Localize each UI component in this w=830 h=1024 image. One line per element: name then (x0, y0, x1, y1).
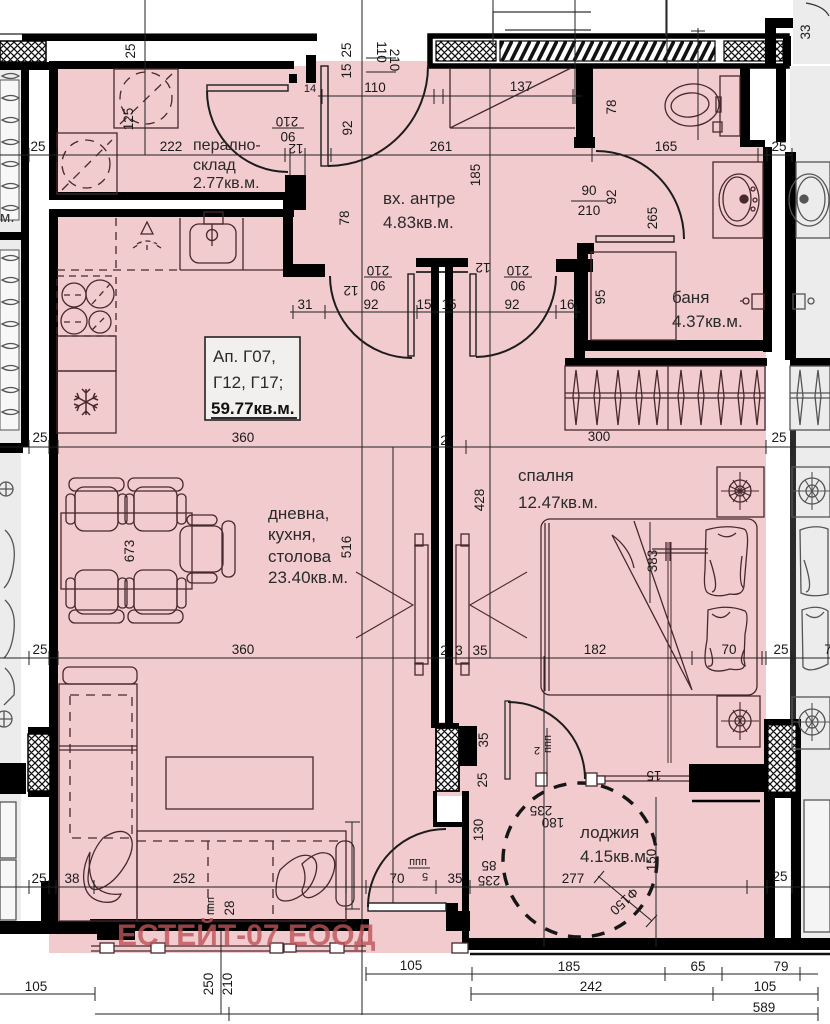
svg-text:столова: столова (268, 547, 332, 566)
svg-text:95: 95 (593, 289, 608, 304)
svg-text:277: 277 (562, 871, 585, 886)
svg-text:перално-: перално- (193, 137, 261, 154)
svg-text:137: 137 (510, 79, 533, 94)
svg-text:спалня: спалня (518, 466, 574, 485)
svg-text:12: 12 (288, 141, 303, 156)
svg-text:383: 383 (645, 550, 660, 573)
svg-text:673: 673 (122, 540, 137, 563)
svg-text:3: 3 (455, 643, 463, 658)
svg-text:35: 35 (447, 871, 462, 886)
svg-text:92: 92 (504, 297, 519, 312)
svg-text:15: 15 (646, 768, 661, 783)
svg-text:110: 110 (374, 41, 389, 63)
svg-text:185: 185 (468, 164, 483, 187)
svg-text:ЕСТЕЙТ-07 ЕООД: ЕСТЕЙТ-07 ЕООД (117, 918, 376, 952)
svg-text:242: 242 (580, 979, 603, 994)
svg-text:25: 25 (771, 430, 786, 445)
svg-text:25: 25 (339, 42, 354, 57)
svg-text:92: 92 (363, 297, 378, 312)
svg-text:33: 33 (798, 24, 813, 39)
svg-text:90: 90 (510, 278, 525, 293)
svg-text:210: 210 (276, 114, 299, 129)
svg-text:23.40кв.м.: 23.40кв.м. (268, 568, 348, 587)
svg-text:4.15кв.м.: 4.15кв.м. (580, 847, 651, 866)
svg-text:25: 25 (771, 139, 786, 154)
svg-text:ппп: ппп (409, 856, 427, 868)
svg-text:235: 235 (478, 873, 501, 888)
svg-text:25: 25 (32, 430, 47, 445)
svg-text:78: 78 (604, 99, 619, 114)
svg-text:105: 105 (25, 979, 48, 994)
svg-text:589: 589 (753, 1000, 776, 1015)
svg-text:125: 125 (121, 108, 136, 131)
svg-text:15: 15 (339, 63, 354, 78)
svg-text:210: 210 (578, 203, 601, 218)
svg-text:79: 79 (773, 959, 788, 974)
svg-text:265: 265 (645, 207, 660, 230)
svg-text:25: 25 (475, 772, 490, 787)
svg-text:65: 65 (690, 959, 705, 974)
svg-text:35: 35 (472, 643, 487, 658)
svg-text:14: 14 (304, 83, 316, 95)
svg-text:360: 360 (232, 430, 255, 445)
svg-text:85: 85 (481, 858, 496, 873)
svg-text:210: 210 (220, 973, 235, 996)
svg-text:Ап. Г07,: Ап. Г07, (213, 347, 276, 366)
svg-text:165: 165 (655, 139, 678, 154)
svg-text:Г12, Г17;: Г12, Г17; (213, 373, 283, 392)
svg-text:7: 7 (824, 642, 830, 657)
svg-text:250: 250 (201, 973, 216, 996)
svg-text:110: 110 (364, 80, 386, 95)
svg-text:130: 130 (471, 819, 486, 842)
svg-text:вх. антре: вх. антре (383, 189, 456, 208)
svg-text:12.47кв.м.: 12.47кв.м. (518, 493, 598, 512)
svg-text:ппп: ппп (542, 735, 554, 753)
svg-text:кухня,: кухня, (268, 525, 316, 544)
svg-text:428: 428 (472, 489, 487, 512)
svg-text:31: 31 (297, 297, 312, 312)
svg-text:360: 360 (232, 642, 255, 657)
svg-text:59.77кв.м.: 59.77кв.м. (211, 399, 295, 418)
svg-text:185: 185 (558, 959, 581, 974)
svg-text:15: 15 (441, 297, 456, 312)
svg-text:склад: склад (193, 157, 236, 174)
svg-text:92: 92 (340, 120, 355, 135)
svg-text:300: 300 (588, 429, 611, 444)
svg-text:25: 25 (30, 139, 45, 154)
svg-text:16: 16 (559, 297, 574, 312)
svg-text:2.77кв.м.: 2.77кв.м. (193, 175, 260, 192)
svg-text:105: 105 (754, 979, 777, 994)
svg-text:5: 5 (422, 870, 428, 882)
svg-text:252: 252 (173, 871, 196, 886)
svg-text:12: 12 (343, 283, 358, 298)
svg-text:15: 15 (416, 297, 431, 312)
svg-text:210: 210 (507, 263, 530, 278)
svg-text:90: 90 (370, 278, 385, 293)
svg-text:182: 182 (584, 642, 607, 657)
svg-text:ппп: ппп (205, 897, 217, 915)
svg-text:2: 2 (440, 643, 448, 658)
svg-text:70: 70 (721, 642, 736, 657)
svg-text:105: 105 (400, 958, 423, 973)
svg-text:35: 35 (476, 732, 491, 747)
svg-text:261: 261 (430, 139, 453, 154)
svg-text:38: 38 (64, 871, 79, 886)
svg-text:25: 25 (772, 869, 787, 884)
svg-text:12: 12 (475, 260, 490, 275)
svg-text:25: 25 (32, 642, 47, 657)
svg-text:28: 28 (222, 900, 237, 915)
svg-text:2: 2 (440, 433, 448, 448)
svg-text:25: 25 (31, 871, 46, 886)
svg-text:78: 78 (337, 210, 352, 225)
svg-text:25: 25 (773, 642, 788, 657)
svg-text:дневна,: дневна, (268, 504, 329, 523)
svg-text:210: 210 (387, 49, 402, 72)
svg-text:70: 70 (389, 871, 404, 886)
svg-text:180: 180 (542, 815, 565, 830)
svg-text:2: 2 (534, 744, 540, 756)
svg-text:222: 222 (160, 139, 183, 154)
svg-text:90: 90 (581, 183, 596, 198)
svg-text:4.83кв.м.: 4.83кв.м. (383, 213, 454, 232)
svg-text:4.37кв.м.: 4.37кв.м. (672, 312, 743, 331)
svg-text:м.: м. (0, 209, 14, 226)
svg-text:516: 516 (339, 536, 354, 559)
svg-text:92: 92 (604, 189, 619, 204)
svg-text:баня: баня (672, 288, 709, 307)
svg-text:лоджия: лоджия (580, 823, 639, 842)
svg-text:25: 25 (123, 43, 138, 58)
svg-text:210: 210 (367, 263, 390, 278)
